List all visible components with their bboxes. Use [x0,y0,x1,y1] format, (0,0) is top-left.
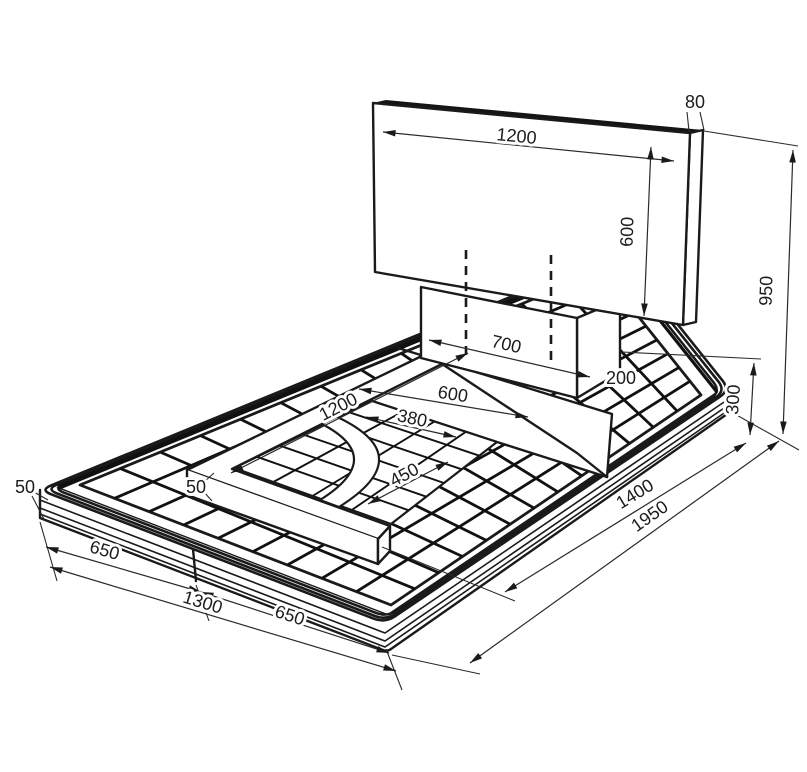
isometric-drawing-canvas: 1200 600 80 950 300 700 200 [0,0,807,772]
dim-panel-thickness: 80 [685,92,705,131]
dim-slab-thickness-label: 50 [15,477,35,497]
technical-drawing-page: 1200 600 80 950 300 700 200 [0,0,807,772]
dim-panel-thickness-label: 80 [685,92,705,112]
dim-panel-width-label: 1200 [496,124,538,148]
dim-pedestal-depth-label: 200 [606,368,636,388]
dim-pedestal-height-label: 300 [722,384,744,415]
dim-panel-height-label: 600 [616,216,637,247]
dim-curb-width-label: 50 [186,477,206,497]
dim-pedestal-depth: 200 [606,368,636,388]
dim-overall-height-label: 950 [755,275,776,306]
